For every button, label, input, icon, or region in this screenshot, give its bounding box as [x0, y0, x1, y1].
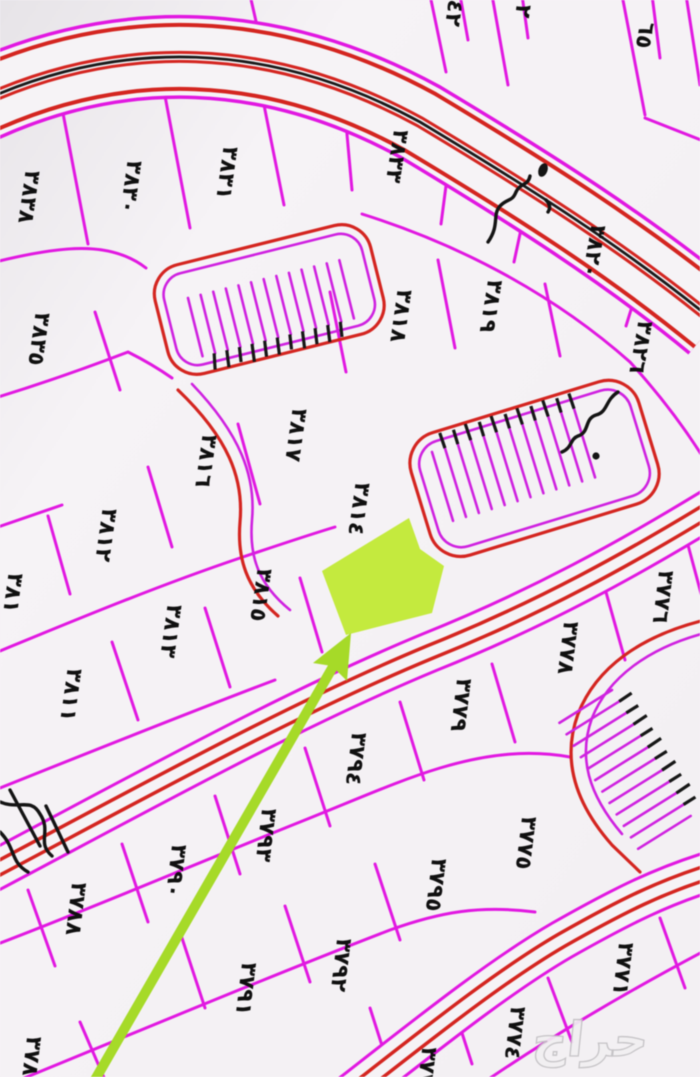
- cadastral-map-screenshot: ٤٢٢٦٥٣٨٣٨٣٨٣٠٣٨٣١٣٨٣٣٣٨٢٠٣٨٢٦٣٨٣٥٣٨١٨٣٨١…: [0, 0, 700, 1077]
- plot-number-label: ٦٥: [630, 20, 659, 51]
- plot-number-label: ٣٧٧: [412, 1045, 442, 1077]
- plot-number-label: ٤٢: [439, 0, 468, 29]
- haraj-watermark-logo: حراج: [530, 1012, 651, 1068]
- plot-number-label: ٣٨١: [0, 571, 28, 614]
- map-canvas: ٤٢٢٦٥٣٨٣٨٣٨٣٠٣٨٣١٣٨٣٣٣٨٢٠٣٨٢٦٣٨٣٥٣٨١٨٣٨١…: [0, 0, 700, 1077]
